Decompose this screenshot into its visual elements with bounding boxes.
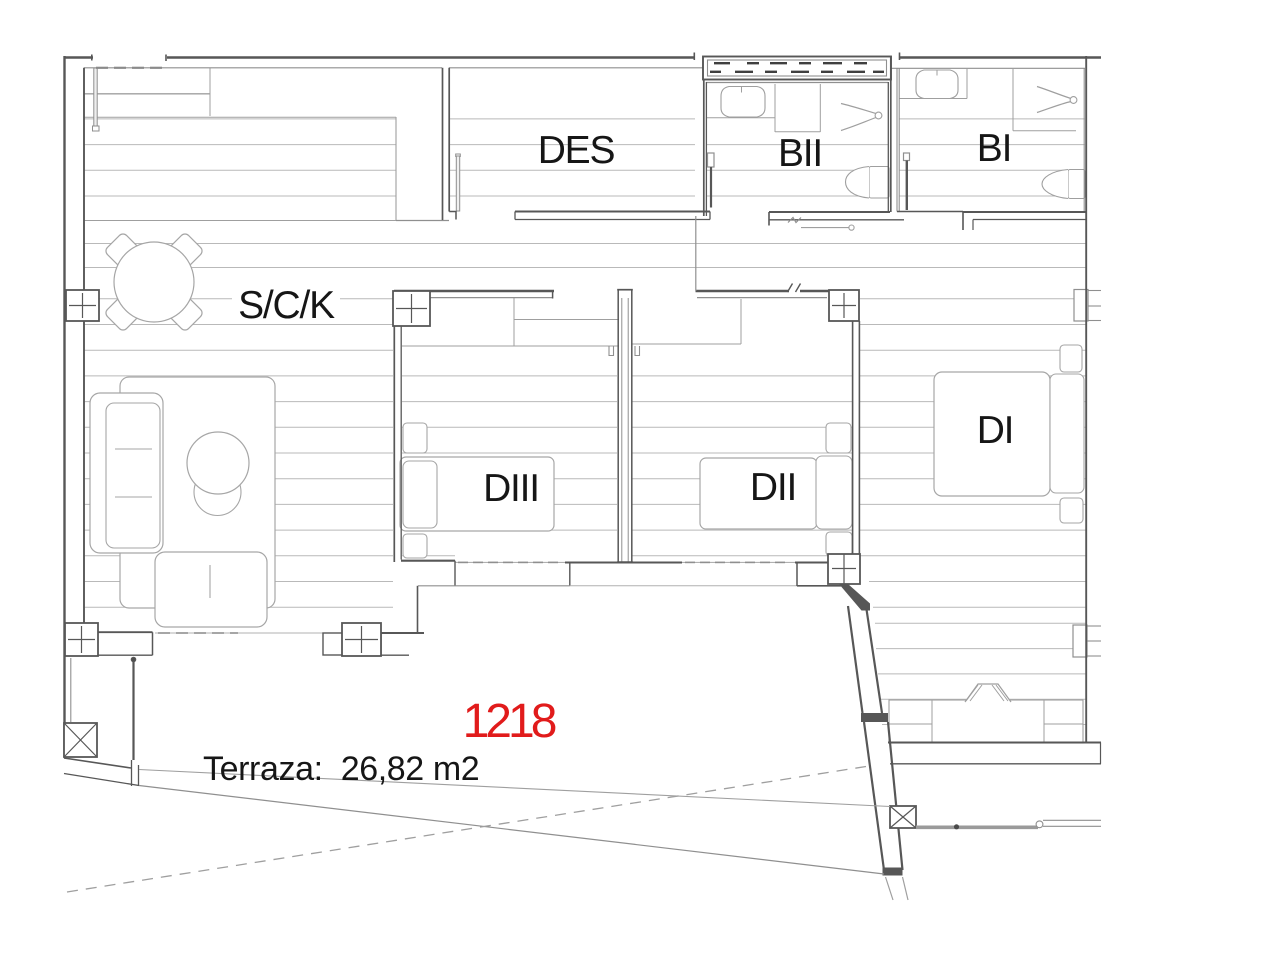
svg-text:BII: BII: [778, 132, 822, 175]
svg-text:DI: DI: [977, 409, 1014, 452]
svg-text:1218: 1218: [463, 695, 556, 748]
svg-text:DII: DII: [750, 466, 796, 509]
svg-text:S/C/K: S/C/K: [238, 284, 335, 327]
svg-text:BI: BI: [977, 127, 1011, 170]
svg-text:DIII: DIII: [483, 467, 539, 510]
svg-text:DES: DES: [538, 129, 615, 172]
svg-text:Terraza: 26,82 m2: Terraza: 26,82 m2: [203, 750, 479, 788]
